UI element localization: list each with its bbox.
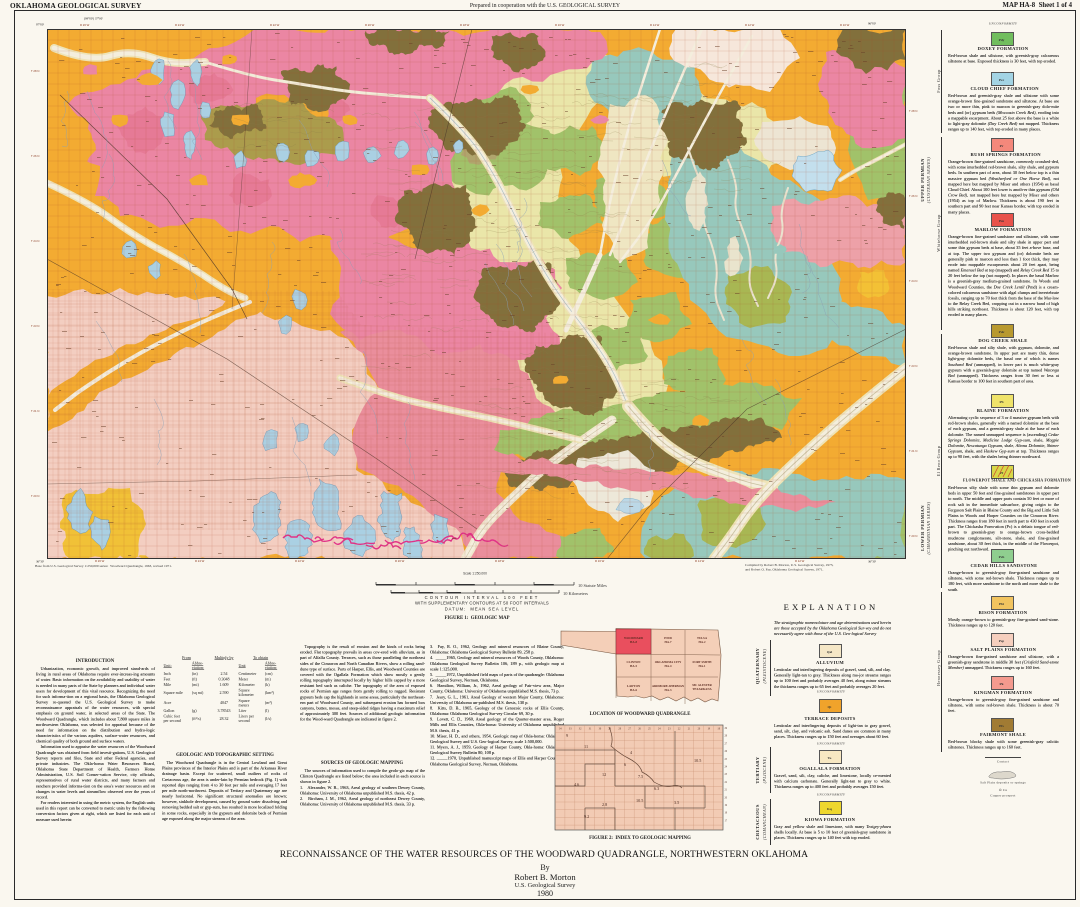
svg-text:10.5: 10.5 <box>636 798 643 803</box>
svg-text:19: 19 <box>725 804 728 807</box>
svg-text:HA-6: HA-6 <box>630 688 637 692</box>
svg-text:6.3: 6.3 <box>654 786 659 791</box>
svg-text:12: 12 <box>602 772 606 777</box>
svg-text:HA-4: HA-4 <box>665 664 672 668</box>
svg-text:17: 17 <box>725 819 728 822</box>
svg-text:21: 21 <box>725 789 728 792</box>
svg-text:HA-5: HA-5 <box>630 664 637 668</box>
svg-text:6: 6 <box>624 762 626 767</box>
svg-text:27: 27 <box>725 742 728 745</box>
svg-text:24: 24 <box>725 766 728 769</box>
svg-text:(COMANCHEAN): (COMANCHEAN) <box>762 804 767 840</box>
svg-text:HA-7: HA-7 <box>665 640 672 644</box>
svg-text:9.2: 9.2 <box>584 814 589 819</box>
svg-text:2.8: 2.8 <box>602 802 607 807</box>
svg-text:3.5: 3.5 <box>674 800 679 805</box>
svg-text:18: 18 <box>725 812 728 815</box>
svg-text:25: 25 <box>725 758 728 761</box>
svg-text:23: 23 <box>725 773 728 776</box>
svg-text:28: 28 <box>725 735 728 738</box>
svg-text:7.5: 7.5 <box>638 774 643 779</box>
svg-text:TEXARKANA: TEXARKANA <box>692 687 712 691</box>
svg-text:11: 11 <box>584 744 588 749</box>
svg-text:(CIMARRONIAN SERIES): (CIMARRONIAN SERIES) <box>926 501 931 554</box>
svg-text:22: 22 <box>725 781 728 784</box>
svg-text:4.6: 4.6 <box>574 782 579 787</box>
svg-text:26: 26 <box>725 750 728 753</box>
svg-text:9: 9 <box>566 733 568 738</box>
svg-text:10 Statute Miles: 10 Statute Miles <box>578 583 607 588</box>
svg-text:10.5: 10.5 <box>694 758 701 763</box>
svg-text:29: 29 <box>725 727 728 730</box>
svg-text:HA-2: HA-2 <box>699 640 706 644</box>
svg-text:HA-3: HA-3 <box>665 688 672 692</box>
svg-text:(PLEISTOCENE): (PLEISTOCENE) <box>762 648 767 683</box>
svg-text:(CUSTERIAN SERIES): (CUSTERIAN SERIES) <box>926 157 931 204</box>
svg-text:HA-8: HA-8 <box>630 640 637 644</box>
svg-text:20: 20 <box>725 796 728 799</box>
svg-text:HA-1: HA-1 <box>699 664 706 668</box>
